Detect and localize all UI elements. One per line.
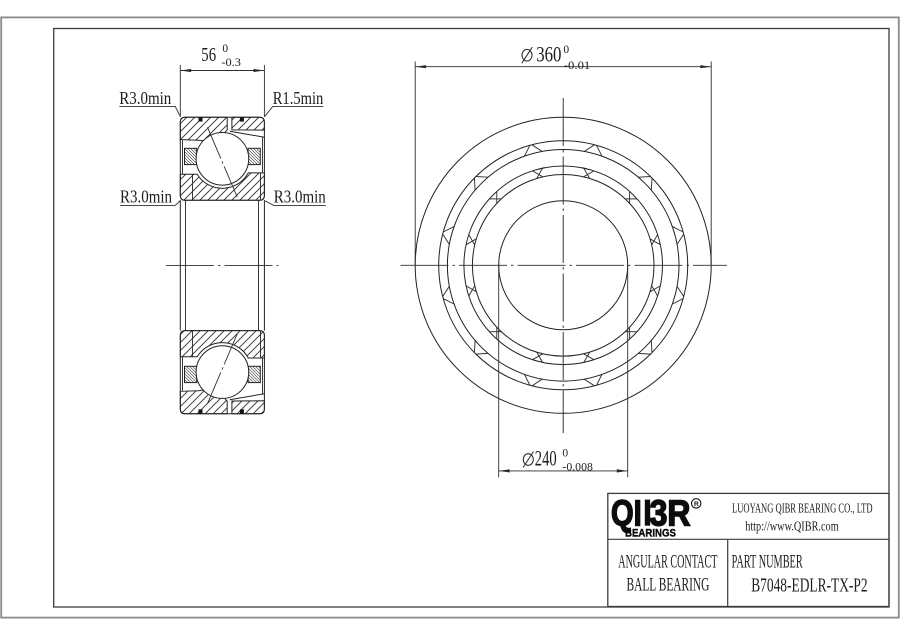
svg-text:-0.3: -0.3	[221, 57, 241, 69]
svg-text:R3.0min: R3.0min	[119, 88, 171, 108]
svg-text:360: 360	[536, 41, 561, 66]
svg-text:R1.5min: R1.5min	[273, 88, 324, 108]
svg-text:R3.0min: R3.0min	[120, 187, 172, 207]
svg-text:http://www.QIBR.com: http://www.QIBR.com	[745, 519, 839, 534]
svg-text:PART NUMBER: PART NUMBER	[732, 552, 803, 573]
svg-text:ANGULAR CONTACT: ANGULAR CONTACT	[618, 552, 717, 573]
svg-text:0: 0	[562, 448, 568, 460]
svg-text:LUOYANG QIBR BEARING CO., LTD: LUOYANG QIBR BEARING CO., LTD	[732, 501, 873, 516]
svg-text:BEARINGS: BEARINGS	[625, 527, 676, 539]
svg-text:-0.008: -0.008	[562, 461, 593, 473]
svg-text:-0.01: -0.01	[564, 60, 591, 72]
svg-text:0: 0	[563, 44, 569, 56]
svg-text:R3.0min: R3.0min	[274, 187, 326, 207]
svg-text:56: 56	[201, 44, 216, 66]
svg-text:R: R	[694, 501, 699, 508]
svg-text:BALL BEARING: BALL BEARING	[627, 574, 710, 595]
svg-text:0: 0	[222, 43, 228, 55]
svg-text:240: 240	[535, 446, 557, 471]
svg-text:B7048-EDLR-TX-P2: B7048-EDLR-TX-P2	[751, 575, 867, 597]
